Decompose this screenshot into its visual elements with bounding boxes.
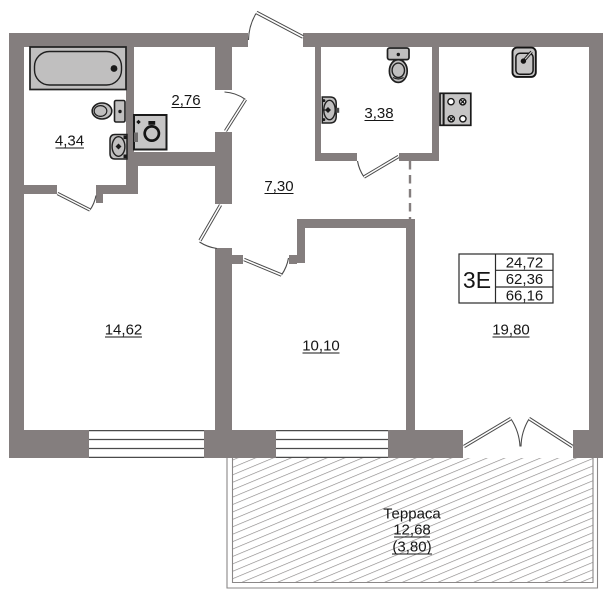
svg-text:4,34: 4,34: [55, 133, 84, 150]
svg-text:7,30: 7,30: [264, 178, 293, 195]
svg-text:3Е: 3Е: [463, 267, 491, 293]
svg-text:Терраса: Терраса: [383, 506, 441, 523]
svg-text:24,72: 24,72: [506, 255, 544, 272]
svg-text:(3,80): (3,80): [392, 539, 431, 556]
svg-text:66,16: 66,16: [506, 288, 544, 305]
svg-text:19,80: 19,80: [492, 322, 530, 339]
svg-text:12,68: 12,68: [393, 522, 431, 539]
svg-text:3,38: 3,38: [364, 105, 393, 122]
svg-text:14,62: 14,62: [105, 322, 143, 339]
svg-text:2,76: 2,76: [171, 92, 200, 109]
svg-text:10,10: 10,10: [302, 338, 340, 355]
svg-text:62,36: 62,36: [506, 271, 544, 288]
